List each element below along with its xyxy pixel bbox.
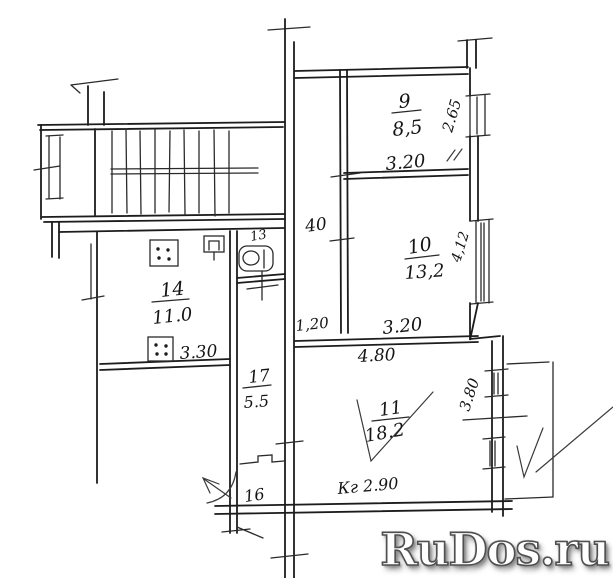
- stove-dot: [155, 352, 158, 355]
- stair-step: [126, 130, 127, 213]
- toilet-symbol: [239, 246, 273, 271]
- room10-area: 13,2: [404, 260, 445, 284]
- stair-landing-line-1: [111, 168, 258, 169]
- stove-symbol-bottom: [148, 337, 173, 361]
- floor-plan-scan: 9 8,5 3.20 2.65 40 10 13,2 3.20 4,12 1,2…: [0, 0, 613, 578]
- window-11a-cap-bottom: [485, 395, 508, 397]
- corridor-wall-top-tick: [268, 27, 310, 30]
- toilet-bowl: [243, 251, 259, 265]
- corridor-wall-tick-bottom: [271, 554, 308, 558]
- hall-width-dim: 1,20: [295, 314, 331, 335]
- room14-number: 14: [159, 278, 185, 302]
- divider-tick-40: [330, 238, 354, 241]
- room13-wc: [237, 246, 285, 300]
- right-wall-top-tick: [458, 38, 492, 41]
- stove-dot: [154, 343, 157, 346]
- rooms-top-wall-inner: [295, 74, 468, 78]
- corridor-width-dim: 40: [303, 214, 328, 237]
- vent-symbol-glyph: [209, 241, 219, 250]
- stove-dot: [156, 247, 159, 250]
- window-11b-cap-bottom: [483, 467, 505, 469]
- chimney-flag-tail: [71, 85, 80, 93]
- room16-number: 16: [243, 484, 266, 506]
- stair-window-cap-top: [46, 135, 63, 136]
- room11-right-tick: [463, 416, 527, 420]
- vent-symbol-box: [204, 236, 224, 252]
- room17-area: 5.5: [243, 391, 270, 412]
- stair-bottom-wall-inner: [44, 219, 285, 222]
- corridor-wall-tick-mid: [276, 441, 303, 444]
- window-10-cap-bottom: [471, 302, 493, 304]
- ceiling-height-note: Кг 2.90: [336, 474, 400, 498]
- room13-number: 13: [249, 227, 268, 245]
- floor-plan-drawing: 9 8,5 3.20 2.65 40 10 13,2 3.20 4,12 1,2…: [0, 0, 613, 578]
- balcony-top: [507, 362, 549, 364]
- balcony-outline: [505, 362, 553, 499]
- stair-top-wall-outer: [38, 122, 285, 125]
- divider-wall-line-1: [340, 70, 341, 333]
- rooms-top-wall-outer: [295, 67, 468, 71]
- chimney-flag: [71, 79, 118, 85]
- room9-number: 9: [398, 90, 412, 113]
- room11-number: 11: [378, 397, 404, 421]
- stair-bottom-wall-outer: [42, 214, 285, 217]
- rooms-9-10-left-wall: [330, 70, 354, 333]
- divider-9-10-line-2: [344, 175, 468, 179]
- balcony-bottom: [505, 497, 553, 499]
- stove-dot: [167, 257, 170, 260]
- room14-left-tick: [82, 296, 104, 300]
- staircase-block: [34, 79, 285, 222]
- corridor-wall: [268, 19, 310, 578]
- stove-dot: [166, 248, 169, 251]
- room11-area: 18.2: [363, 419, 406, 447]
- rudos-watermark: RuDos.ru: [380, 523, 609, 576]
- stair-tick-left: [34, 166, 60, 170]
- stair-step: [184, 130, 185, 214]
- top-right-walls: [295, 38, 492, 78]
- stove-dot: [157, 256, 160, 259]
- room10-number: 10: [406, 233, 434, 259]
- room9-height-dim: 2.65: [438, 97, 465, 135]
- room17-number: 17: [247, 366, 271, 388]
- room9-width-dim: 3.20: [385, 151, 427, 175]
- room10-height-dim: 4,12: [448, 230, 473, 266]
- stair-step: [169, 131, 170, 212]
- room11-height-dim: 3.80: [456, 375, 484, 413]
- stair-top-wall-inner: [40, 127, 283, 130]
- room14-width-dim: 3.30: [179, 341, 218, 364]
- room16-door-arc: [207, 472, 236, 503]
- room11-width-dim: 4.80: [356, 345, 396, 367]
- right-wall-seg-3: [470, 303, 478, 340]
- room11-bottom-line-2: [215, 509, 512, 514]
- room14-bottom-line-2: [100, 365, 230, 370]
- stair-step: [140, 131, 141, 214]
- stove-symbol-top: [150, 240, 178, 266]
- stove-dot: [164, 344, 167, 347]
- stove-dot: [164, 352, 167, 355]
- window-11b-cap-top: [483, 437, 505, 439]
- room16-top-notch: [240, 455, 284, 464]
- labels: 9 8,5 3.20 2.65 40 10 13,2 3.20 4,12 1,2…: [151, 90, 483, 506]
- wc-bottom-line-1: [237, 274, 285, 278]
- room14-area: 11.0: [151, 304, 193, 329]
- window-10-cap-top: [471, 219, 493, 221]
- divider-wall-line-2: [347, 70, 348, 333]
- room9-area: 8,5: [391, 116, 423, 141]
- long-diagonal-stroke: [536, 407, 613, 472]
- stair-landing-line-2: [111, 173, 258, 174]
- room10-width-dim: 3.20: [381, 314, 423, 339]
- wc-bottom-line-2: [237, 279, 285, 283]
- window-11a-cap-top: [485, 369, 508, 371]
